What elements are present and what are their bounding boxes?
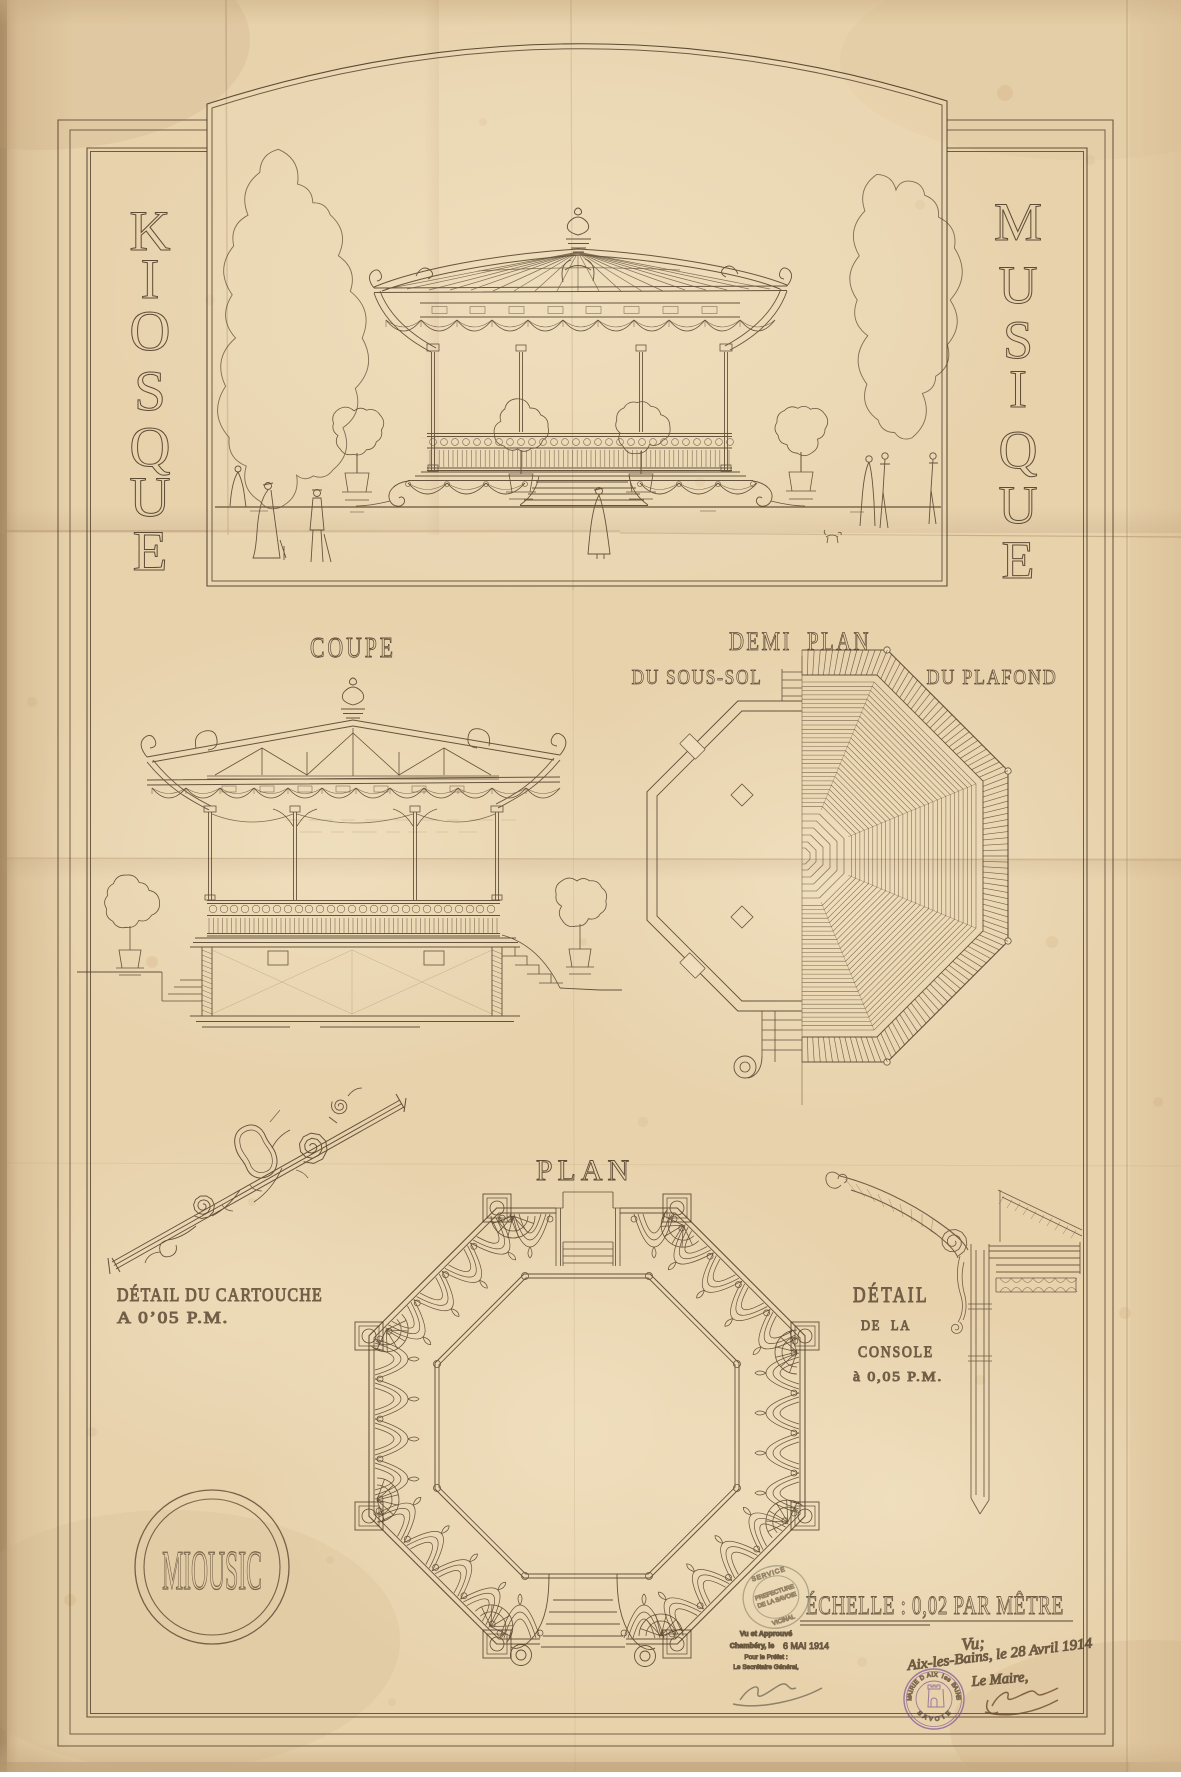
svg-text:E: E bbox=[1002, 530, 1035, 590]
svg-text:DU PLAFOND: DU PLAFOND bbox=[927, 665, 1058, 689]
svg-text:O: O bbox=[129, 300, 170, 363]
svg-text:DE LA: DE LA bbox=[861, 1318, 911, 1334]
svg-text:I: I bbox=[1009, 359, 1027, 419]
svg-text:DEMI PLAN: DEMI PLAN bbox=[729, 627, 871, 656]
svg-text:COUPE: COUPE bbox=[310, 632, 396, 664]
svg-text:S: S bbox=[134, 360, 166, 423]
svg-text:Q: Q bbox=[999, 420, 1038, 480]
svg-text:A 0’05 P.M.: A 0’05 P.M. bbox=[117, 1308, 229, 1327]
svg-text:U: U bbox=[999, 475, 1038, 535]
svg-text:PLAN: PLAN bbox=[536, 1154, 634, 1187]
svg-text:6 MAI 1914: 6 MAI 1914 bbox=[783, 1641, 829, 1651]
svg-text:Vu et Approuvé: Vu et Approuvé bbox=[740, 1629, 793, 1638]
svg-text:E: E bbox=[133, 520, 168, 583]
svg-text:DÉTAIL: DÉTAIL bbox=[853, 1282, 929, 1307]
svg-text:à 0,05 P.M.: à 0,05 P.M. bbox=[853, 1370, 943, 1385]
svg-text:U: U bbox=[999, 255, 1038, 315]
svg-text:Pour le Préfet :: Pour le Préfet : bbox=[744, 1654, 788, 1661]
svg-text:CONSOLE: CONSOLE bbox=[858, 1344, 934, 1361]
svg-text:Chambéry, le: Chambéry, le bbox=[730, 1641, 775, 1650]
svg-text:DÉTAIL DU CARTOUCHE: DÉTAIL DU CARTOUCHE bbox=[117, 1284, 323, 1306]
svg-text:M: M bbox=[994, 192, 1042, 252]
svg-text:Le Secrétaire Général,: Le Secrétaire Général, bbox=[733, 1664, 799, 1671]
svg-text:MIOUSIC: MIOUSIC bbox=[162, 1540, 262, 1602]
svg-text:X: X bbox=[933, 1672, 937, 1678]
svg-text:S: S bbox=[954, 1696, 960, 1700]
svg-text:DU SOUS-SOL: DU SOUS-SOL bbox=[632, 665, 763, 689]
svg-text:ÉCHELLE : 0,02 PAR MÊTRE: ÉCHELLE : 0,02 PAR MÊTRE bbox=[806, 1591, 1064, 1620]
